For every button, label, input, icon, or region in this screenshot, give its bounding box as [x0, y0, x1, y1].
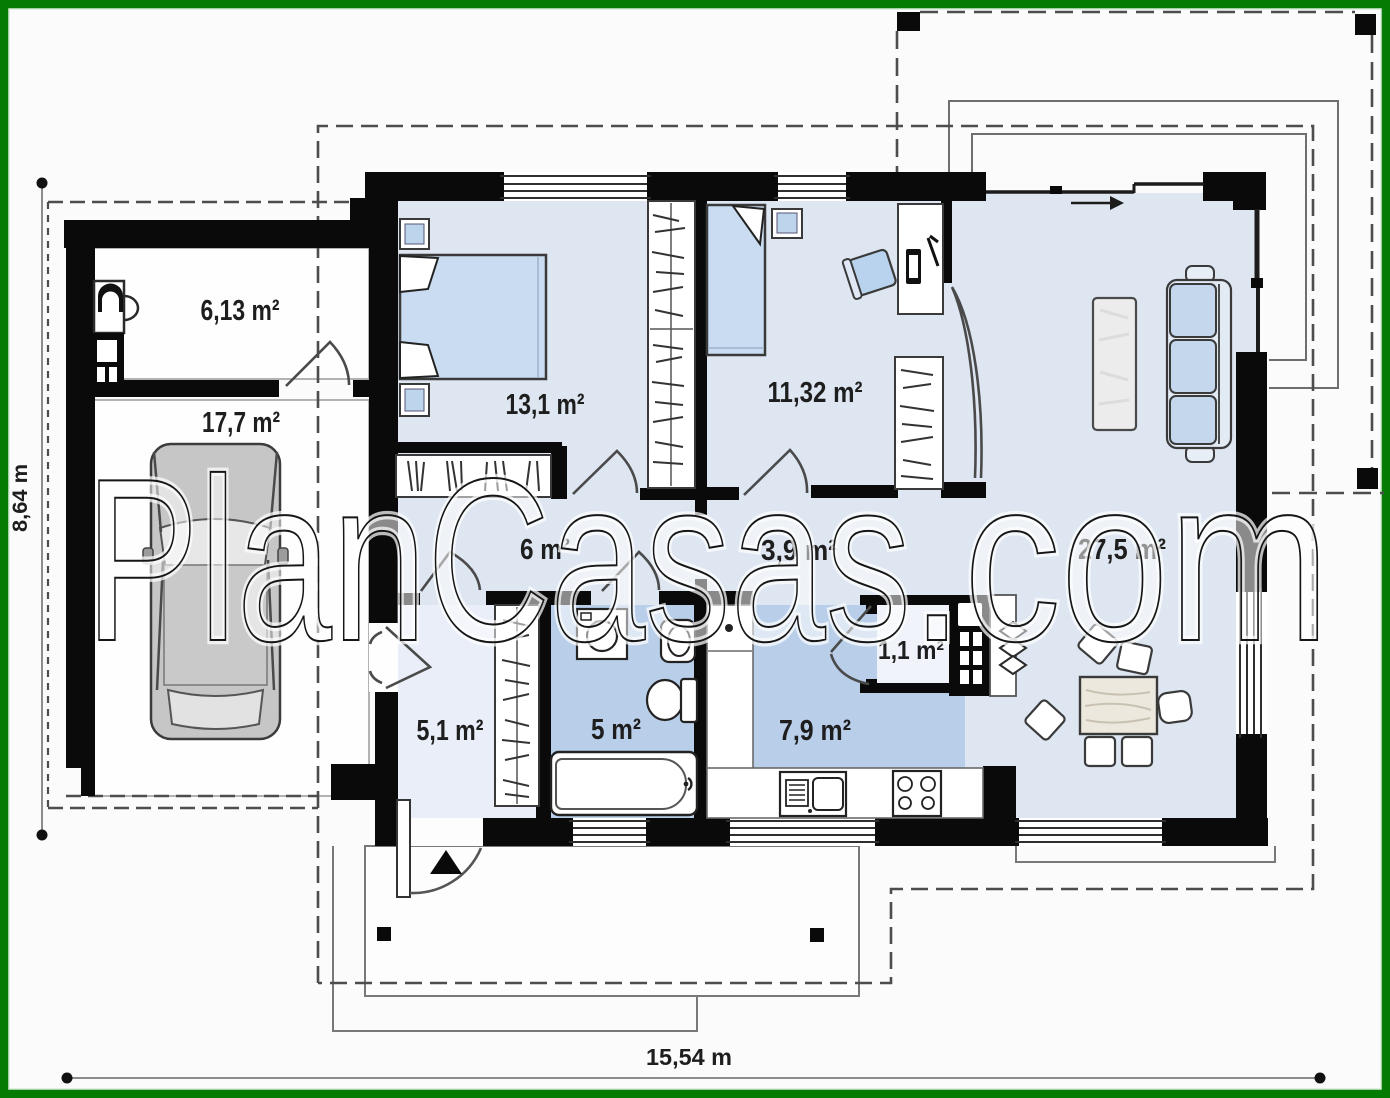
svg-text:PlanCasas: PlanCasas [85, 431, 911, 690]
svg-text:15,54 m: 15,54 m [646, 1044, 732, 1070]
svg-text:6,13 m²: 6,13 m² [201, 295, 280, 327]
svg-text:7,9 m²: 7,9 m² [779, 715, 851, 747]
svg-text:11,32 m²: 11,32 m² [768, 377, 863, 409]
svg-text:8,64 m: 8,64 m [9, 464, 32, 532]
svg-text:5 m²: 5 m² [591, 714, 641, 746]
svg-text:13,1 m²: 13,1 m² [506, 389, 585, 421]
svg-text:5,1 m²: 5,1 m² [417, 715, 484, 747]
svg-text:.com: .com [910, 431, 1330, 690]
